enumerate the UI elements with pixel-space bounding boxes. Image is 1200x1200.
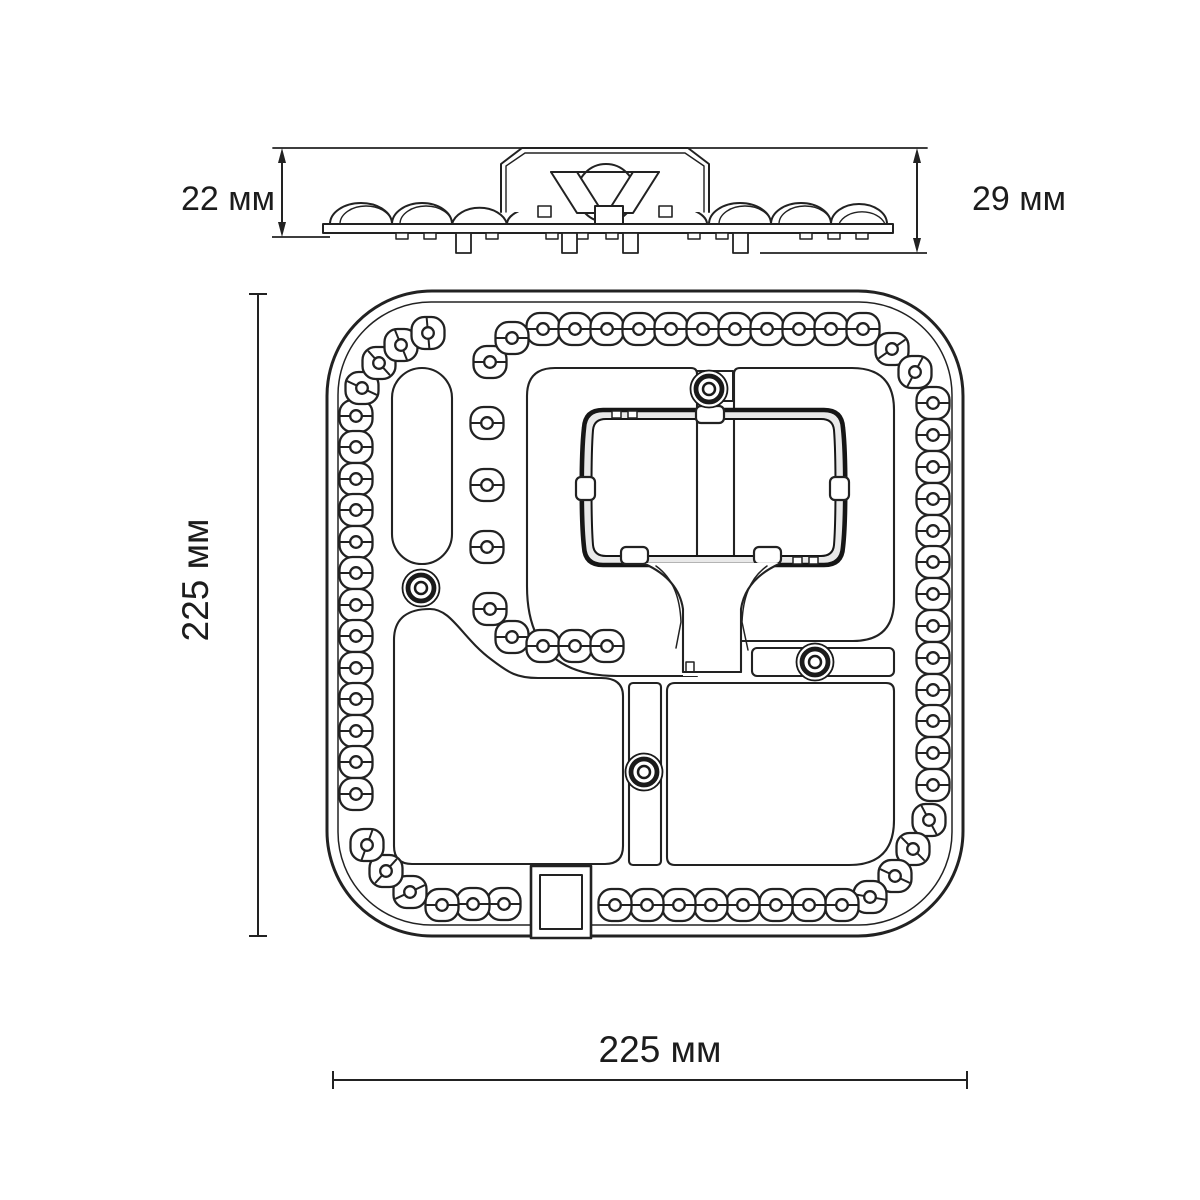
led-lens [783,313,816,345]
led-lens [340,683,373,715]
led-lens [917,451,950,483]
bracket-clip-2 [628,411,637,418]
led-lens [340,589,373,621]
led-lens [719,313,752,345]
led-lens [917,578,950,610]
led-lens [815,313,848,345]
led-lens [488,888,521,920]
side-board [323,224,893,233]
v-bracket-clip-left [538,206,551,217]
led-lens [917,769,950,801]
bracket-clip-1 [612,411,621,418]
led-lens [847,313,880,345]
dimension-22mm: 22 мм [181,148,330,237]
led-lens [655,313,688,345]
board-outline [327,291,963,936]
drawing-canvas: 22 мм 29 мм [0,0,1200,1200]
led-lens [559,313,592,345]
label-22mm: 22 мм [181,180,275,218]
led-lens [917,642,950,674]
led-lens [727,889,760,921]
led-lens [591,630,624,662]
led-lens [663,889,696,921]
v-bracket-block [595,206,623,225]
led-lens [412,317,445,349]
label-height: 225 мм [175,519,216,642]
screw-hole [691,371,728,408]
led-lens [917,674,950,706]
led-lens [913,804,946,836]
led-lens [591,313,624,345]
led-lens [751,313,784,345]
led-lens [917,387,950,419]
led-lens [917,610,950,642]
led-lens [695,889,728,921]
bracket-tab-left [576,477,595,500]
bracket-tab-bottom-mid [754,547,781,564]
led-lens [917,419,950,451]
led-lens [340,431,373,463]
label-29mm: 29 мм [972,180,1066,218]
led-lens [340,463,373,495]
led-lens [471,531,504,563]
led-lens [826,889,859,921]
bracket-tab-right [830,477,849,500]
led-lens [760,889,793,921]
led-lens [917,483,950,515]
led-lens [351,829,384,861]
led-lens [917,515,950,547]
led-lens [340,778,373,810]
led-lens [474,593,507,625]
led-lens [426,889,459,921]
led-lens [340,494,373,526]
led-lens [527,313,560,345]
screw-hole [797,644,834,681]
led-lens [917,737,950,769]
led-lens [340,746,373,778]
led-lens [559,630,592,662]
led-lens [917,705,950,737]
led-lens [793,889,826,921]
led-lens [527,630,560,662]
led-lens [471,407,504,439]
connector [531,866,591,938]
screw-hole [626,754,663,791]
top-view [327,291,963,938]
side-view [273,148,927,253]
label-width: 225 мм [599,1029,722,1070]
led-lens [340,620,373,652]
bracket-clip-4 [809,557,818,564]
led-lens [599,889,632,921]
led-lens [623,313,656,345]
led-lens [340,557,373,589]
bracket-tab-bottom-left [621,547,648,564]
v-bracket-clip-right [659,206,672,217]
led-lens [899,356,932,388]
bracket-tab-top [696,406,724,423]
technical-drawing: 22 мм 29 мм [0,0,1200,1200]
led-lens [340,652,373,684]
dimension-width: 225 мм [333,1029,967,1089]
led-lens [340,526,373,558]
dimension-height: 225 мм [175,294,267,936]
led-lens [687,313,720,345]
screw-hole [403,570,440,607]
led-lens [917,546,950,578]
led-lens [340,715,373,747]
led-lens [496,322,529,354]
led-lens [631,889,664,921]
led-lens [471,469,504,501]
led-lens [457,888,490,920]
led-lens [496,621,529,653]
side-pins [456,233,748,253]
bracket-clip-3 [793,557,802,564]
